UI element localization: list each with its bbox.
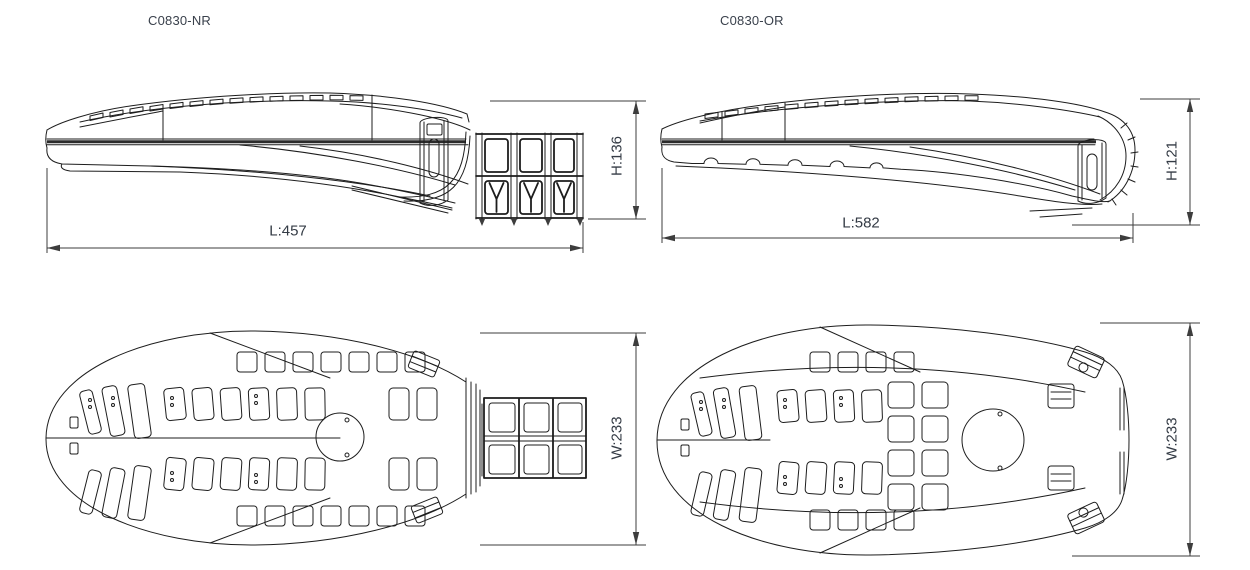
- dimension-drawing-sheet: C0830-NR C0830-OR: [0, 0, 1250, 570]
- nr-top-mounting-bracket: [484, 398, 586, 478]
- nr-top-housing-outline: [46, 331, 482, 545]
- or-top-dimension-lines: [1072, 323, 1200, 556]
- nr-top-vent-slots: [70, 352, 437, 526]
- or-side-tail: [1078, 112, 1138, 205]
- or-length-dimension-label: L:582: [842, 215, 880, 232]
- model-title-nr: C0830-NR: [148, 13, 211, 28]
- nr-length-dimension-label: L:457: [269, 223, 307, 240]
- nr-top-latch-clips: [408, 350, 444, 523]
- nr-height-dimension-label: H:136: [609, 136, 626, 176]
- model-title-or: C0830-OR: [720, 13, 784, 28]
- or-top-view-drawing: [650, 300, 1210, 570]
- nr-side-view-drawing: [40, 85, 660, 265]
- or-width-dimension-label: W:233: [1164, 417, 1181, 460]
- or-top-latch-clips: [1067, 345, 1105, 534]
- or-top-housing-outline: [657, 325, 1129, 555]
- nr-top-mount-plate: [316, 413, 364, 461]
- or-height-dimension-label: H:121: [1164, 141, 1181, 181]
- or-side-lamp-body: [661, 93, 1110, 217]
- nr-side-lamp-body: [46, 93, 470, 213]
- nr-side-dimension-lines: [47, 101, 646, 253]
- nr-width-dimension-label: W:233: [609, 416, 626, 459]
- nr-top-view-drawing: [40, 300, 660, 570]
- or-side-view-drawing: [650, 85, 1210, 265]
- or-top-mount-plate: [962, 409, 1024, 471]
- nr-side-mounting-bracket: [476, 133, 583, 226]
